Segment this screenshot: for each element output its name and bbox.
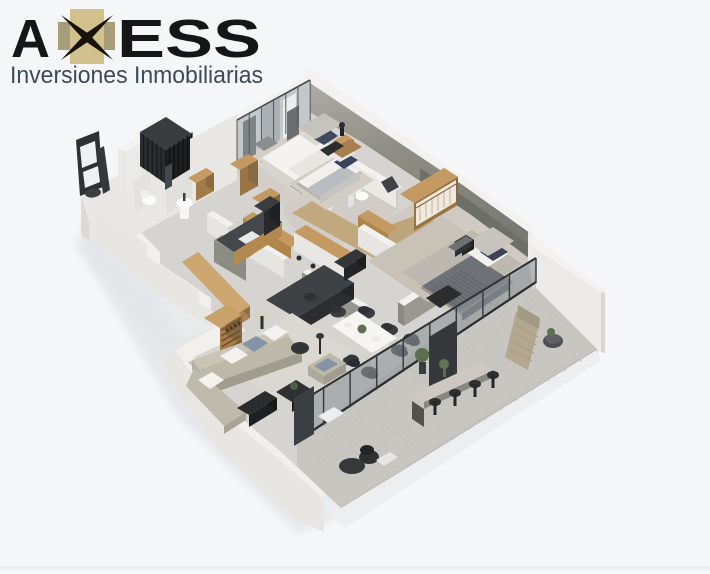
svg-text:A: A [11,9,50,69]
svg-text:Inversiones Inmobiliarias: Inversiones Inmobiliarias [10,62,263,89]
svg-text:ESS: ESS [117,9,261,69]
